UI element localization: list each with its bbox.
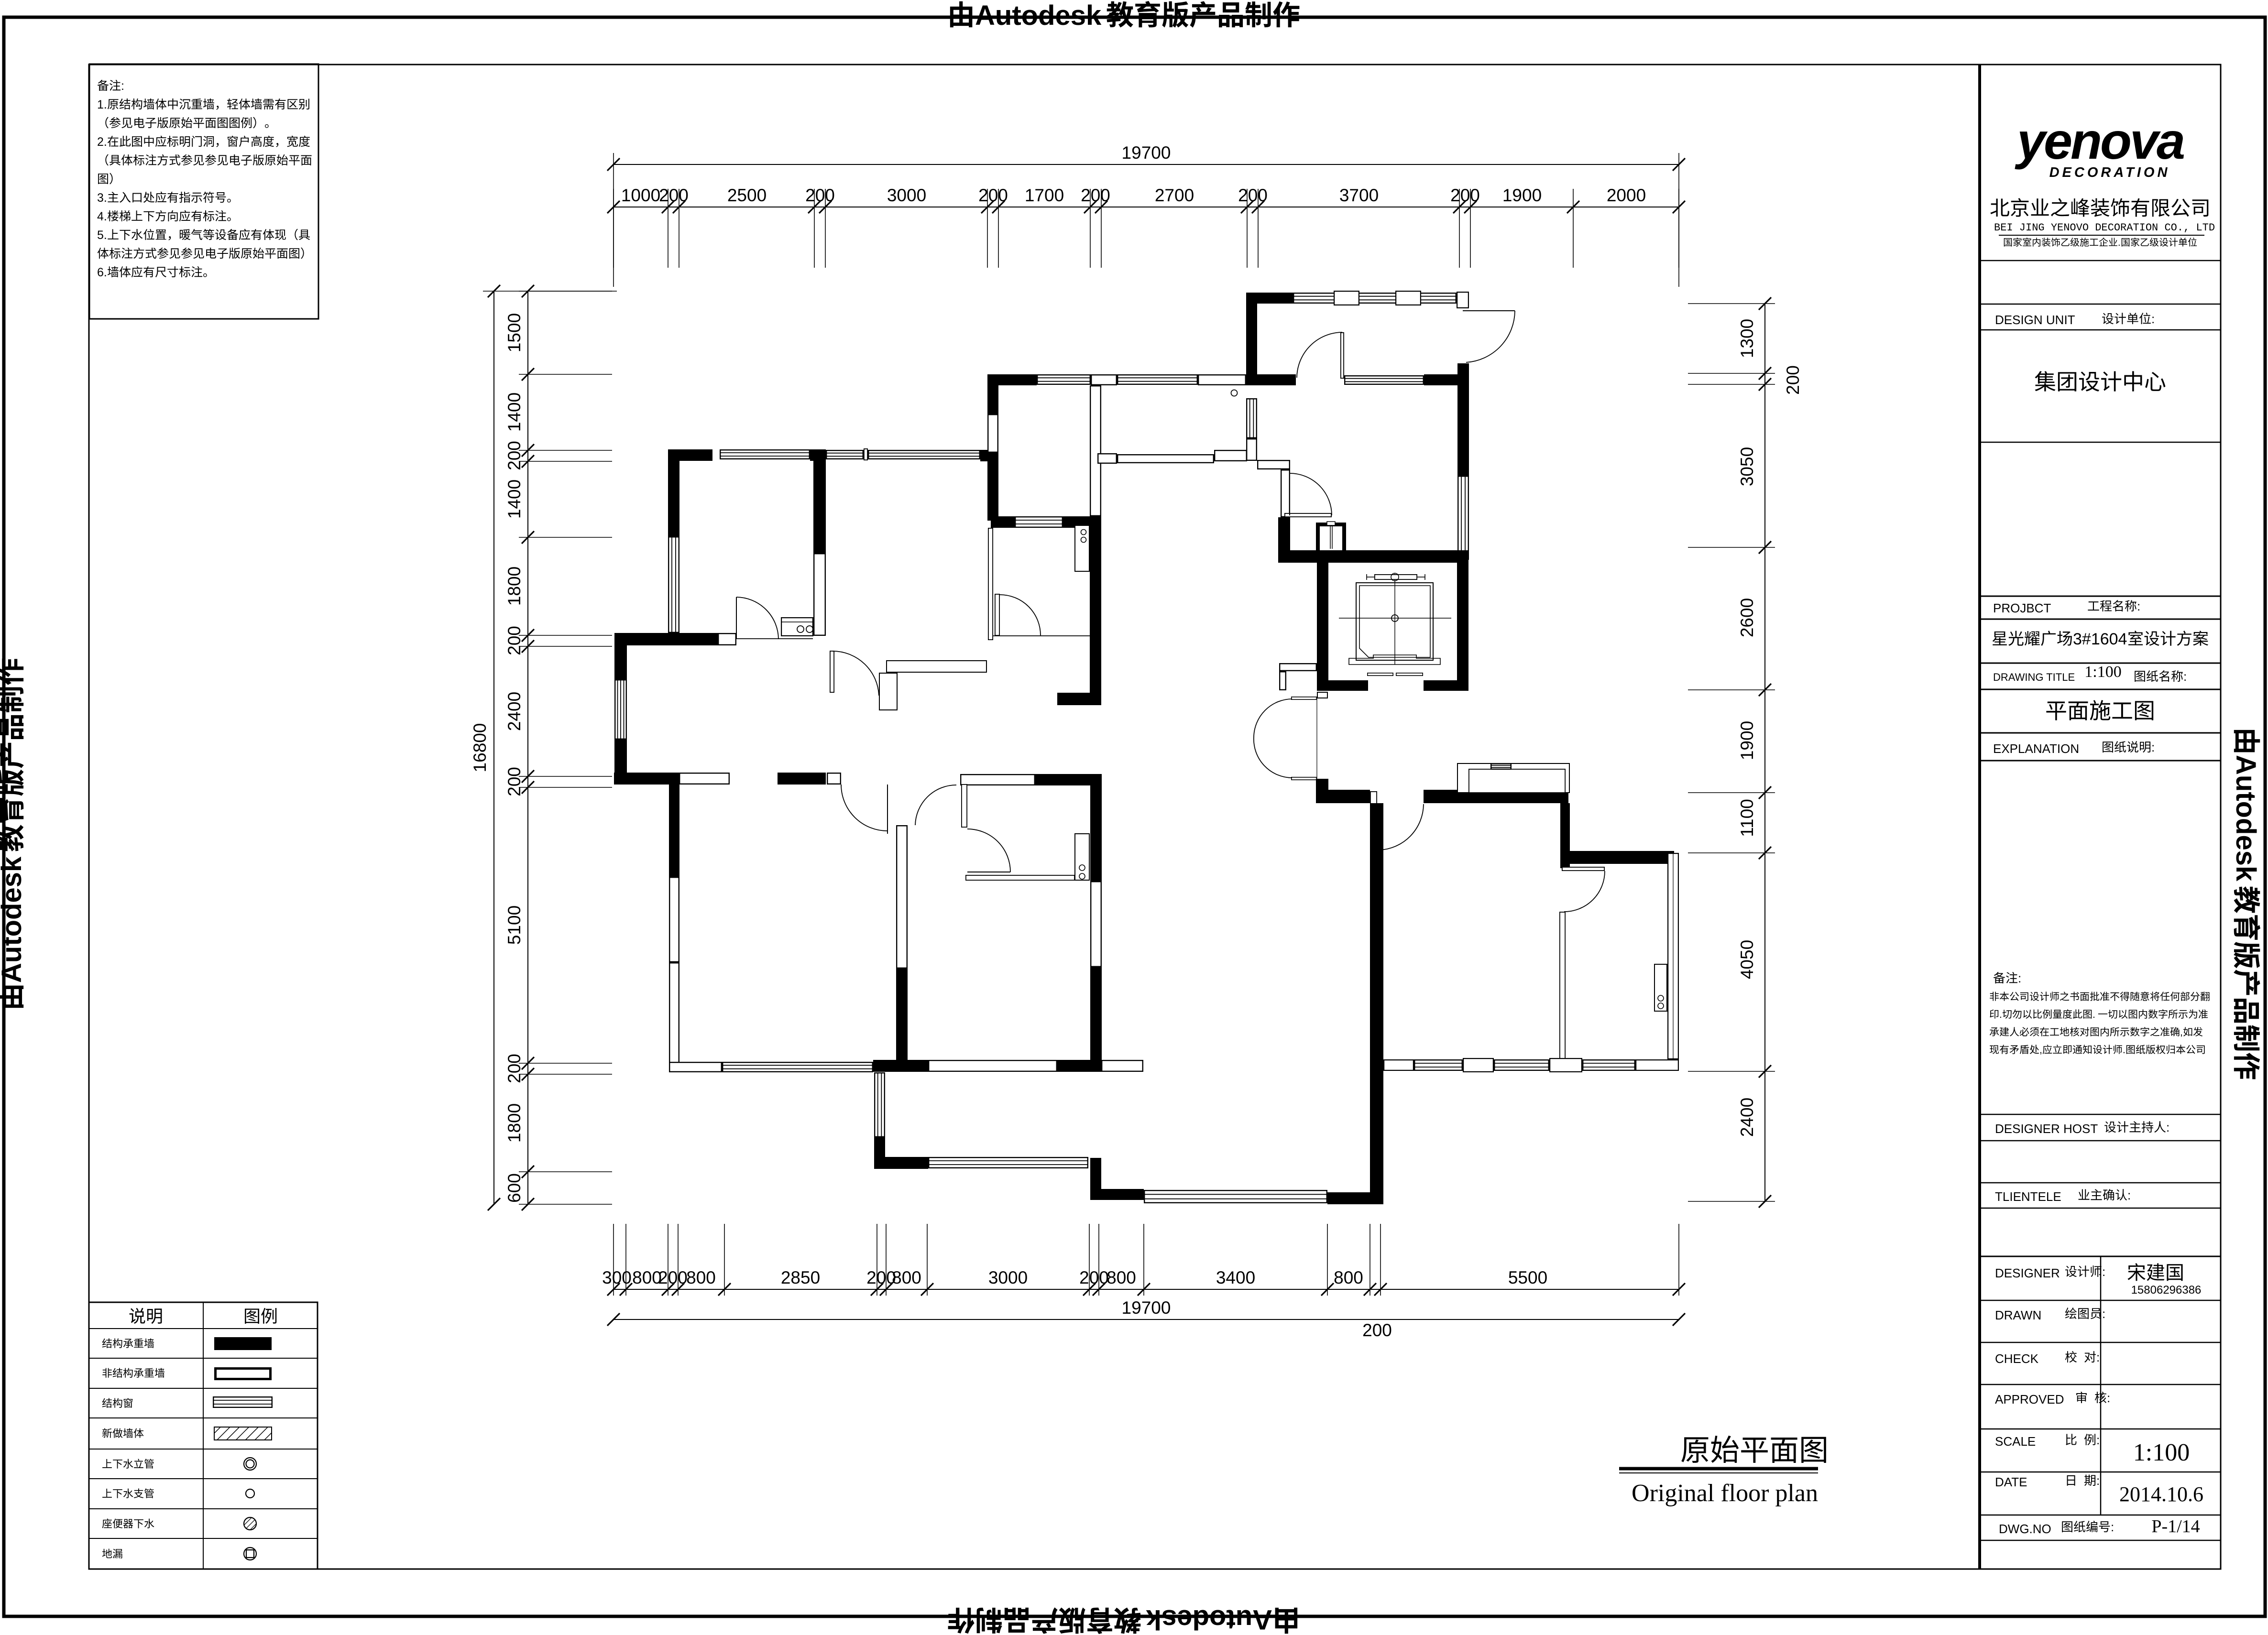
svg-text:1300: 1300 xyxy=(1737,319,1757,358)
svg-text:DRAWING TITLE: DRAWING TITLE xyxy=(1993,671,2075,683)
svg-text::: : xyxy=(2151,312,2155,326)
svg-text:1400: 1400 xyxy=(504,392,524,432)
svg-text:800: 800 xyxy=(632,1268,662,1287)
svg-text:TLIENTELE: TLIENTELE xyxy=(1995,1189,2061,1204)
svg-text::: : xyxy=(2096,1473,2100,1488)
svg-text::: : xyxy=(121,79,124,93)
svg-text:800: 800 xyxy=(892,1268,921,1287)
svg-text:,: , xyxy=(2039,1045,2042,1056)
svg-text:5500: 5500 xyxy=(1508,1268,1547,1287)
svg-text:200: 200 xyxy=(504,626,524,655)
svg-text:5100: 5100 xyxy=(504,905,524,945)
svg-text:2014.10.6: 2014.10.6 xyxy=(2119,1482,2203,1506)
svg-text:1900: 1900 xyxy=(1502,185,1542,205)
svg-text:6.: 6. xyxy=(97,266,107,279)
svg-text:19700: 19700 xyxy=(1122,143,1171,163)
svg-text:200: 200 xyxy=(504,1054,524,1083)
svg-text:200: 200 xyxy=(1450,185,1480,205)
svg-text:EXPLANATION: EXPLANATION xyxy=(1993,741,2079,756)
svg-text:200: 200 xyxy=(1238,185,1268,205)
svg-text:.: . xyxy=(1999,1009,2002,1020)
svg-text:300: 300 xyxy=(602,1268,632,1287)
svg-text::: : xyxy=(2127,1188,2131,1202)
svg-text:2400: 2400 xyxy=(504,692,524,731)
svg-text::: : xyxy=(2102,1264,2105,1279)
svg-text:1800: 1800 xyxy=(504,567,524,606)
svg-text:2600: 2600 xyxy=(1737,598,1757,637)
svg-text:2.: 2. xyxy=(97,135,107,149)
svg-text:3000: 3000 xyxy=(988,1268,1028,1287)
svg-text:Autodesk: Autodesk xyxy=(2230,755,2261,882)
svg-text:1:100: 1:100 xyxy=(2133,1439,2190,1466)
svg-text:DESIGN UNIT: DESIGN UNIT xyxy=(1995,313,2075,327)
svg-text:600: 600 xyxy=(504,1173,524,1203)
svg-text:200: 200 xyxy=(504,767,524,796)
svg-text:2000: 2000 xyxy=(1607,185,1646,205)
svg-text:DECORATION: DECORATION xyxy=(2049,165,2170,180)
svg-text:Original floor plan: Original floor plan xyxy=(1632,1480,1818,1507)
svg-text::: : xyxy=(2107,1391,2110,1405)
svg-text::: : xyxy=(2096,1350,2100,1364)
svg-text:3050: 3050 xyxy=(1737,447,1757,486)
svg-text:1700: 1700 xyxy=(1025,185,1064,205)
svg-text:15806296386: 15806296386 xyxy=(2131,1284,2202,1297)
svg-text:4050: 4050 xyxy=(1737,940,1757,979)
svg-text:200: 200 xyxy=(1783,365,1803,395)
svg-text:1.: 1. xyxy=(97,98,107,111)
svg-text:200: 200 xyxy=(1079,1268,1109,1287)
svg-text::: : xyxy=(2096,1433,2100,1447)
svg-text:DWG.NO: DWG.NO xyxy=(1999,1522,2051,1536)
svg-text:19700: 19700 xyxy=(1122,1298,1171,1318)
svg-text:1800: 1800 xyxy=(504,1103,524,1143)
svg-text::: : xyxy=(2183,669,2187,684)
svg-text:1400: 1400 xyxy=(504,480,524,519)
svg-text:2400: 2400 xyxy=(1737,1098,1757,1137)
svg-text:200: 200 xyxy=(978,185,1008,205)
svg-text:.: . xyxy=(2123,1045,2126,1056)
svg-text::: : xyxy=(2111,1520,2114,1534)
svg-text:SCALE: SCALE xyxy=(1995,1434,2036,1449)
svg-text:1900: 1900 xyxy=(1737,721,1757,760)
svg-text:CHECK: CHECK xyxy=(1995,1352,2039,1366)
svg-text:PROJBCT: PROJBCT xyxy=(1993,601,2051,615)
svg-text::: : xyxy=(2102,1307,2105,1321)
svg-text:,: , xyxy=(2180,1027,2183,1038)
svg-text:800: 800 xyxy=(1334,1268,1363,1287)
svg-text::: : xyxy=(2151,740,2155,754)
svg-text:.: . xyxy=(2118,238,2121,248)
svg-text:P-1/14: P-1/14 xyxy=(2151,1516,2200,1537)
svg-text:Autodesk: Autodesk xyxy=(975,0,1102,31)
svg-text:1500: 1500 xyxy=(504,313,524,352)
svg-text::: : xyxy=(2166,1120,2169,1134)
svg-text:3#1604: 3#1604 xyxy=(2073,630,2127,648)
svg-text:200: 200 xyxy=(659,185,689,205)
svg-text:DESIGNER: DESIGNER xyxy=(1995,1266,2060,1280)
svg-text:Autodesk: Autodesk xyxy=(1146,1604,1272,1635)
svg-text:800: 800 xyxy=(1107,1268,1136,1287)
svg-text:2850: 2850 xyxy=(781,1268,820,1287)
svg-text:200: 200 xyxy=(805,185,835,205)
svg-text:DATE: DATE xyxy=(1995,1475,2027,1489)
svg-text:200: 200 xyxy=(1362,1320,1392,1340)
svg-text:BEI JING YENOVO DECORATION CO.: BEI JING YENOVO DECORATION CO., LTD xyxy=(1994,222,2215,234)
svg-text:4.: 4. xyxy=(97,210,107,223)
svg-text:.: . xyxy=(2093,1009,2095,1020)
svg-text:APPROVED: APPROVED xyxy=(1995,1392,2064,1406)
svg-text:2700: 2700 xyxy=(1155,185,1194,205)
svg-text:1100: 1100 xyxy=(1737,799,1757,837)
svg-text:5.: 5. xyxy=(97,229,107,242)
svg-text:DESIGNER HOST: DESIGNER HOST xyxy=(1995,1122,2098,1136)
svg-text:200: 200 xyxy=(504,441,524,470)
svg-text::: : xyxy=(2137,599,2140,613)
svg-text:3400: 3400 xyxy=(1216,1268,1255,1287)
svg-text:800: 800 xyxy=(686,1268,716,1287)
svg-text:3.: 3. xyxy=(97,191,107,205)
svg-text:DRAWN: DRAWN xyxy=(1995,1308,2041,1322)
svg-text:1000: 1000 xyxy=(621,185,660,205)
svg-text:3000: 3000 xyxy=(887,185,926,205)
svg-text:Autodesk: Autodesk xyxy=(0,856,27,983)
svg-text:3700: 3700 xyxy=(1339,185,1379,205)
svg-text:200: 200 xyxy=(1081,185,1110,205)
svg-text:16800: 16800 xyxy=(470,723,490,773)
svg-text:200: 200 xyxy=(658,1268,688,1287)
svg-text:1:100: 1:100 xyxy=(2084,663,2121,681)
svg-text::: : xyxy=(2018,971,2021,985)
svg-text:yenova: yenova xyxy=(2015,112,2184,170)
svg-text:2500: 2500 xyxy=(727,185,767,205)
